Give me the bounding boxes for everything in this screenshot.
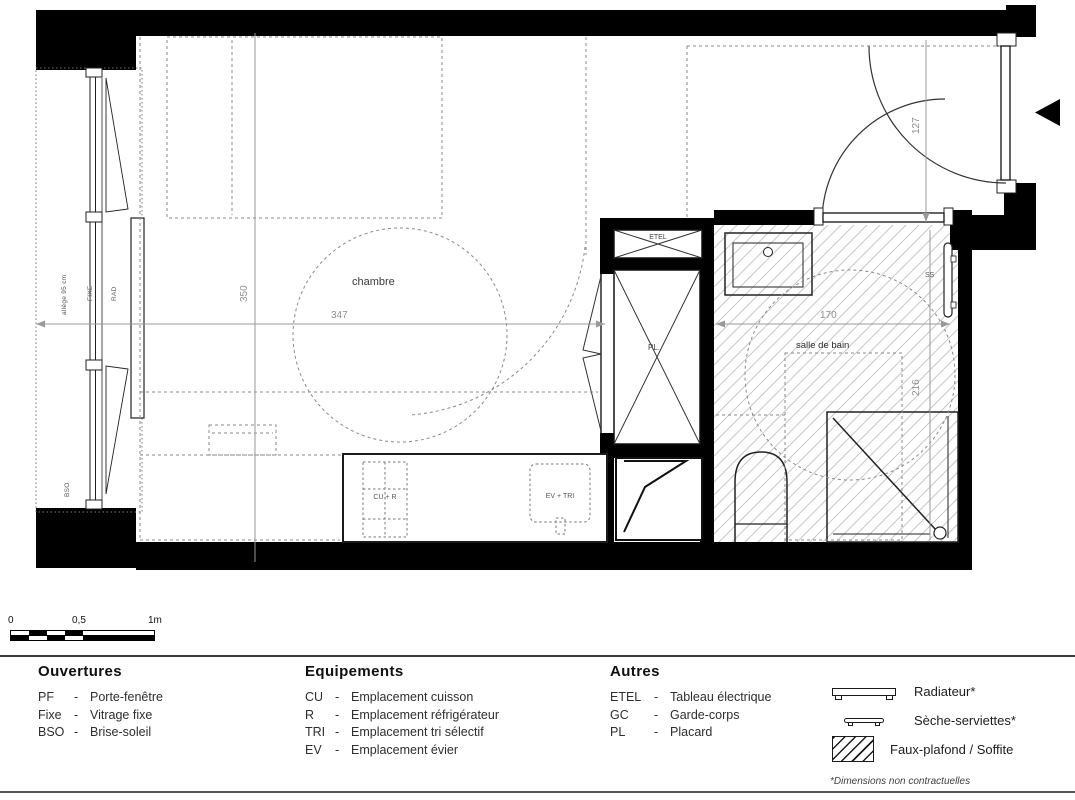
entrance-door-swing [869, 46, 1006, 183]
dash: - [335, 724, 351, 742]
desk-outline [209, 425, 276, 455]
dash: - [335, 689, 351, 707]
legend-item: EV - Emplacement évier [305, 742, 499, 760]
bathroom-door-swing [822, 99, 945, 222]
dash: - [654, 707, 670, 725]
radiator-label: RAD [111, 286, 118, 301]
electrical-panel-label: ETEL [614, 234, 702, 241]
dash: - [74, 707, 90, 725]
legend-item: PL - Placard [610, 724, 771, 742]
dash: - [74, 724, 90, 742]
legend-radiator: Radiateur* [832, 684, 975, 699]
soffit-hatch-symbol-icon [832, 736, 874, 762]
bathroom-label: salle de bain [796, 340, 849, 351]
legend-item: GC - Garde-corps [610, 707, 771, 725]
glazing-triangle-bottom [106, 366, 128, 494]
turning-circle-bedroom [293, 228, 507, 442]
dim-bedroom-depth: 350 [239, 285, 250, 302]
legend-others-title: Autres [610, 663, 771, 680]
radiator [131, 218, 144, 418]
legend-openings-title: Ouvertures [38, 663, 163, 680]
entrance-door [869, 33, 1016, 193]
scale-tick-mid: 0,5 [72, 615, 86, 626]
sunshade-label: BSO [64, 482, 71, 497]
scale-bar [10, 630, 155, 641]
scale-tick-start: 0 [8, 615, 14, 626]
legend-item: CU - Emplacement cuisson [305, 689, 499, 707]
floor-plan-drawing [0, 0, 1075, 610]
bottom-border [0, 791, 1075, 793]
legend-soffit: Faux-plafond / Soffite [832, 736, 1013, 762]
dash: - [654, 689, 670, 707]
dash: - [654, 724, 670, 742]
towel-dryer-symbol-icon [844, 718, 884, 723]
duct-box [616, 458, 702, 540]
floor-plan-page: chambre salle de bain 347 170 350 216 12… [0, 0, 1075, 800]
legend-towel-dryer: Sèche-serviettes* [844, 713, 1016, 728]
towel-dryer-label: SS [925, 272, 934, 279]
legend-item: TRI - Emplacement tri sélectif [305, 724, 499, 742]
radiator-symbol-icon [832, 688, 896, 696]
legend-equipment: Equipements CU - Emplacement cuisson R -… [305, 663, 499, 759]
dim-bathroom-width: 170 [820, 310, 837, 321]
entrance-arrow-icon [1035, 99, 1060, 126]
glazing-triangle-top [106, 78, 128, 212]
sink-sorting-label: EV + TRI [530, 493, 590, 500]
legend-item: ETEL - Tableau électrique [610, 689, 771, 707]
dash: - [335, 742, 351, 760]
shower-drain [934, 527, 946, 539]
dim-bathroom-depth: 216 [911, 379, 922, 396]
dim-bedroom-width: 347 [331, 310, 348, 321]
legend-divider [0, 655, 1075, 657]
dash: - [74, 689, 90, 707]
sill-height-label: allège 95 cm [61, 275, 68, 315]
cooking-fridge-label: CU + R [363, 494, 407, 501]
legend-item: Fixe - Vitrage fixe [38, 707, 163, 725]
bed-outline [167, 37, 442, 218]
closet-door-swing-top [583, 276, 601, 354]
scale-tick-end: 1m [148, 615, 162, 626]
dim-entry: 127 [911, 117, 922, 134]
legend-item: R - Emplacement réfrigérateur [305, 707, 499, 725]
legend-item: BSO - Brise-soleil [38, 724, 163, 742]
closet-label: PL. [610, 343, 698, 352]
dash: - [335, 707, 351, 725]
legend-equipment-title: Equipements [305, 663, 499, 680]
faucet [764, 248, 773, 257]
bedroom-label: chambre [352, 276, 395, 288]
dimensions-footnote: *Dimensions non contractuelles [830, 776, 970, 787]
legend-others: Autres ETEL - Tableau électrique GC - Ga… [610, 663, 771, 742]
legend-openings: Ouvertures PF - Porte-fenêtre Fixe - Vit… [38, 663, 163, 742]
legend-item: PF - Porte-fenêtre [38, 689, 163, 707]
fixed-glazing-label: FIXE [87, 285, 94, 301]
